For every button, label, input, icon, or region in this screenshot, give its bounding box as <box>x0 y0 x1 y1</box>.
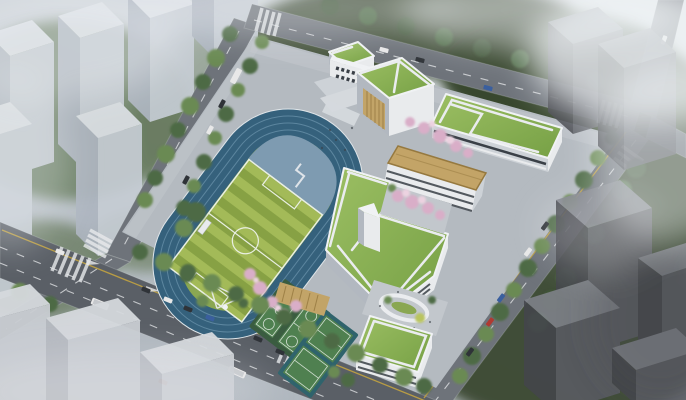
aerial-campus-rendering <box>0 0 686 400</box>
rendering-canvas <box>0 0 686 400</box>
stair-tower <box>364 212 380 252</box>
stair-tower-side <box>358 208 364 246</box>
